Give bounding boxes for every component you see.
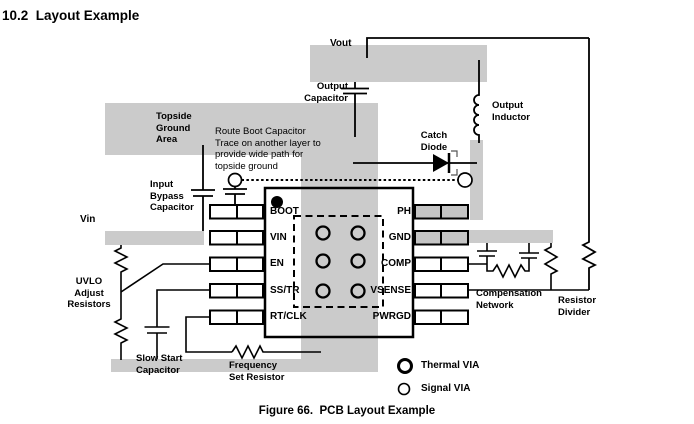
boot-capacitor bbox=[223, 187, 247, 206]
compensation-network-label: Compensation Network bbox=[476, 288, 542, 311]
pin-label-pwrgd: PWRGD bbox=[341, 311, 411, 323]
pcb-layout-figure: 10.2 Layout Example Vout Output Capacito… bbox=[0, 0, 694, 424]
figure-caption: Figure 66. PCB Layout Example bbox=[0, 405, 694, 417]
pin-label-vsense: VSENSE bbox=[341, 285, 411, 297]
pin-label-vin: VIN bbox=[270, 232, 287, 244]
slow-start-label: Slow Start Capacitor bbox=[136, 353, 182, 376]
pin-label-boot: BOOT bbox=[270, 206, 299, 218]
signal-via-boot-left bbox=[229, 174, 242, 187]
vin-label: Vin bbox=[80, 214, 95, 226]
output-inductor bbox=[474, 60, 479, 143]
input-bypass-label: Input Bypass Capacitor bbox=[150, 179, 194, 214]
pin-label-gnd: GND bbox=[341, 232, 411, 244]
signal-via-legend-label: Signal VIA bbox=[421, 383, 470, 395]
signal-via-legend-icon bbox=[399, 384, 410, 395]
thermal-via-legend-label: Thermal VIA bbox=[421, 360, 479, 372]
catch-diode bbox=[353, 151, 477, 175]
resistor-divider-label: Resistor Divider bbox=[558, 295, 596, 318]
section-title: 10.2 Layout Example bbox=[2, 8, 139, 23]
feedback-trace bbox=[367, 38, 595, 290]
pin-label-comp: COMP bbox=[341, 258, 411, 270]
vout-label: Vout bbox=[330, 38, 351, 50]
pin-label-sstr: SS/TR bbox=[270, 285, 299, 297]
frequency-set-label: Frequency Set Resistor bbox=[229, 360, 284, 383]
uvlo-label: UVLO Adjust Resistors bbox=[55, 276, 123, 311]
compensation-network bbox=[467, 243, 557, 290]
pin-label-rtclk: RT/CLK bbox=[270, 311, 307, 323]
output-inductor-label: Output Inductor bbox=[492, 100, 530, 123]
pin-label-ph: PH bbox=[341, 206, 411, 218]
right-pads bbox=[415, 205, 468, 324]
uvlo-adjust-resistors bbox=[115, 245, 210, 360]
route-boot-note: Route Boot Capacitor Trace on another la… bbox=[215, 126, 321, 172]
pin-label-en: EN bbox=[270, 258, 284, 270]
thermal-via-legend-icon bbox=[399, 360, 412, 373]
catch-diode-label: Catch Diode bbox=[410, 130, 458, 153]
slow-start-capacitor bbox=[145, 290, 211, 359]
output-capacitor-label: Output Capacitor bbox=[288, 81, 348, 104]
signal-via-boot-right bbox=[458, 173, 472, 187]
left-pads bbox=[210, 205, 263, 324]
topside-ground-label: Topside Ground Area bbox=[156, 111, 192, 146]
